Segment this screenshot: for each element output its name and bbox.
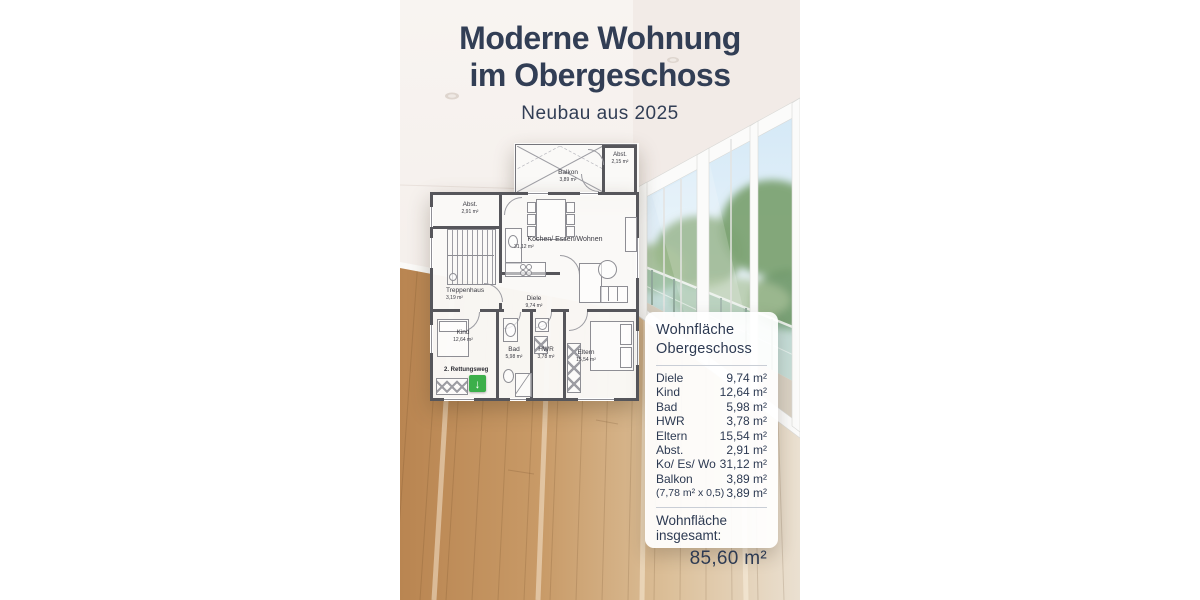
stove-burner — [526, 270, 532, 276]
panel-row-balkon: Balkon3,89 m² — [656, 472, 767, 486]
plan-window — [636, 331, 639, 365]
kitchen-counter — [505, 262, 546, 277]
plan-window — [430, 238, 433, 268]
floor-plan: 2. Rettungsweg ↓ Balkon3,89 m² Abst.2,15… — [430, 143, 640, 401]
sofa — [600, 286, 628, 303]
panel-rows: Diele9,74 m² Kind12,64 m² Bad5,98 m² HWR… — [656, 371, 767, 501]
balcony-door — [580, 192, 598, 195]
balcony-door — [528, 192, 548, 195]
plan-window — [510, 398, 526, 401]
panel-title-line2: Obergeschoss — [656, 340, 767, 359]
panel-row-ko-es-wo: Ko/ Es/ Wo31,12 m² — [656, 457, 767, 471]
pillow — [620, 347, 632, 368]
coffee-table — [598, 260, 617, 279]
room-label-abst-2: Abst.2,15 m² — [606, 152, 634, 165]
chair — [527, 202, 536, 213]
room-label-hwr: HWR3,78 m² — [532, 346, 560, 360]
panel-total-value: 85,60 m² — [656, 548, 767, 570]
room-label-bad: Bad5,98 m² — [500, 346, 528, 360]
escape-route-arrow-icon: ↓ — [469, 375, 486, 392]
panel-divider — [656, 365, 767, 366]
panel-row-eltern: Eltern15,54 m² — [656, 429, 767, 443]
escape-route-label: 2. Rettungsweg — [444, 367, 488, 373]
panel-row-kind: Kind12,64 m² — [656, 385, 767, 399]
washbasin — [505, 323, 516, 337]
room-label-kind: Kind12,64 m² — [444, 329, 482, 343]
panel-row-bad: Bad5,98 m² — [656, 400, 767, 414]
room-label-balkon: Balkon3,89 m² — [530, 169, 606, 183]
room-label-kochen-essen-wohnen: Kochen/ Essen/Wohnen 31,12 m² — [510, 236, 620, 250]
sideboard — [625, 217, 637, 252]
plan-window — [578, 398, 614, 401]
panel-divider — [656, 507, 767, 508]
pillow — [620, 324, 632, 345]
area-panel: Wohnfläche Obergeschoss Diele9,74 m² Kin… — [645, 312, 778, 548]
plan-window — [430, 207, 433, 227]
escape-hatch — [436, 378, 468, 395]
dining-table — [536, 199, 566, 240]
plan-window — [430, 325, 433, 353]
panel-row-diele: Diele9,74 m² — [656, 371, 767, 385]
flyer-canvas: Moderne Wohnung im Obergeschoss Neubau a… — [0, 0, 1200, 600]
room-label-treppenhaus: Treppenhaus3,19 m² — [446, 287, 504, 301]
toilet — [503, 369, 514, 383]
page-subtitle: Neubau aus 2025 — [400, 103, 800, 125]
header: Moderne Wohnung im Obergeschoss Neubau a… — [400, 20, 800, 125]
panel-row-abst: Abst.2,91 m² — [656, 443, 767, 457]
panel-title-line1: Wohnfläche — [656, 321, 767, 340]
plan-window — [444, 398, 474, 401]
chair — [527, 214, 536, 225]
panel-row-balkon-note: (7,78 m² x 0,5)3,89 m² — [656, 486, 767, 500]
room-label-abst-1: Abst.2,91 m² — [445, 201, 495, 215]
panel-total-label: Wohnfläche insgesamt: — [656, 513, 767, 543]
chair — [566, 202, 575, 213]
room-label-eltern: Eltern15,54 m² — [570, 349, 602, 363]
panel-row-hwr: HWR3,78 m² — [656, 414, 767, 428]
chair — [566, 214, 575, 225]
apartment-photo: Moderne Wohnung im Obergeschoss Neubau a… — [400, 0, 800, 600]
room-label-diele: Diele9,74 m² — [516, 295, 552, 309]
page-title-line2: im Obergeschoss — [400, 57, 800, 94]
page-title-line1: Moderne Wohnung — [400, 20, 800, 57]
